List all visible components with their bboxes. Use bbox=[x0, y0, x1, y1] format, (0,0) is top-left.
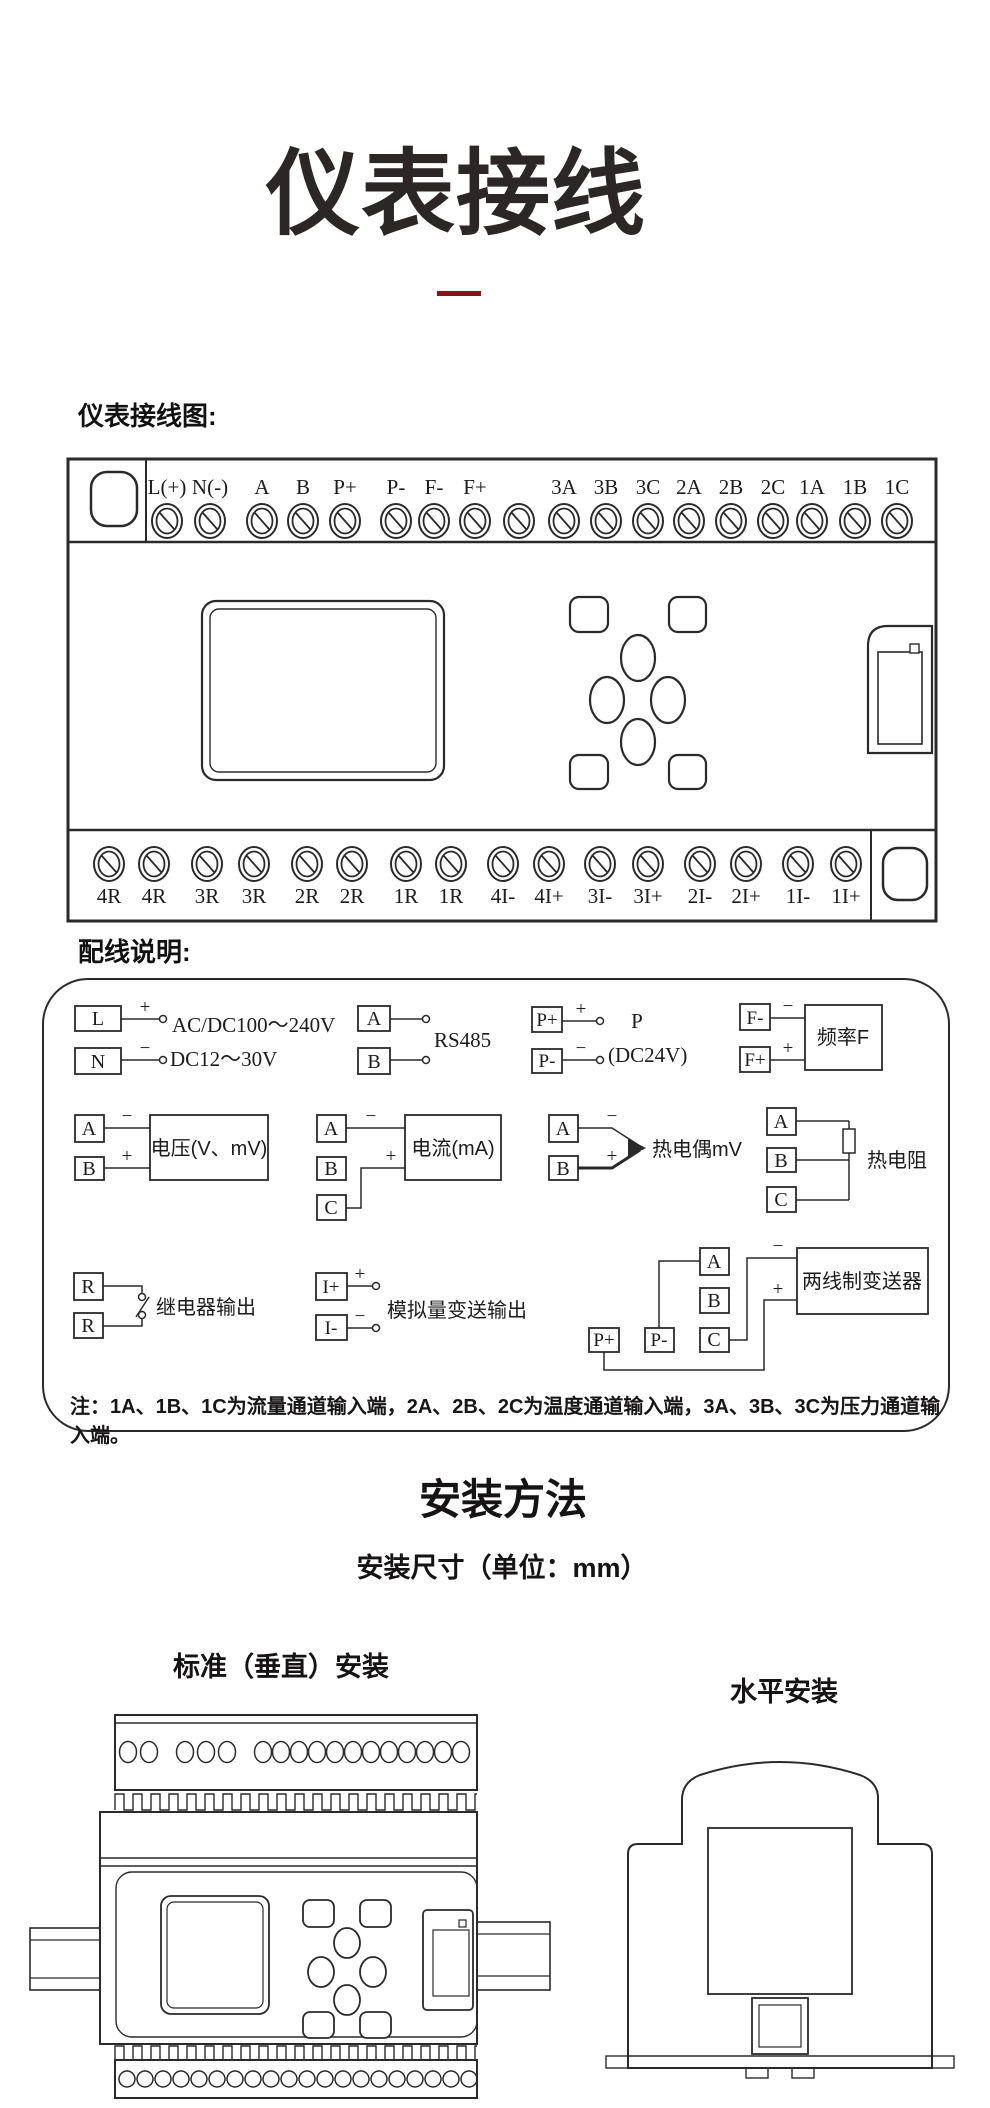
screw-terminal bbox=[419, 504, 449, 538]
svg-text:−: − bbox=[773, 1236, 784, 1257]
terminal-label: 2C bbox=[761, 475, 786, 499]
screw-terminal bbox=[247, 504, 277, 538]
svg-text:A: A bbox=[367, 1008, 382, 1030]
screw-terminal bbox=[731, 847, 761, 881]
display-window bbox=[202, 601, 444, 780]
legend-current: A B C 电流(mA) − + bbox=[317, 1106, 501, 1220]
screw-terminal bbox=[330, 504, 360, 538]
svg-text:−: − bbox=[122, 1106, 133, 1127]
legend-rtd: A B C 热电阻 bbox=[767, 1108, 927, 1212]
terminal-label: 2A bbox=[676, 475, 703, 499]
svg-text:−: − bbox=[366, 1106, 377, 1127]
screw-terminal bbox=[239, 847, 269, 881]
terminal-label: 1A bbox=[799, 475, 826, 499]
terminal-label: 2I- bbox=[688, 884, 713, 908]
mini-connector bbox=[423, 1910, 473, 2010]
legend-note: 注：1A、1B、1C为流量通道输入端，2A、2B、2C为温度通道输入端，3A、3… bbox=[70, 1390, 950, 1448]
legend-frequency: F- F+ 频率F − + bbox=[740, 996, 882, 1072]
key-left bbox=[590, 677, 624, 723]
svg-text:−: − bbox=[355, 1306, 366, 1327]
screw-terminal bbox=[633, 847, 663, 881]
svg-text:继电器输出: 继电器输出 bbox=[156, 1296, 256, 1319]
screw-terminal bbox=[716, 504, 746, 538]
terminal-label: L(+) bbox=[148, 475, 187, 499]
mount-hole-bottom-right bbox=[883, 848, 927, 900]
svg-text:+: + bbox=[355, 1264, 366, 1285]
screw-terminal bbox=[797, 504, 827, 538]
svg-text:C: C bbox=[707, 1329, 720, 1351]
terminal-label: 3A bbox=[551, 475, 578, 499]
svg-text:−: − bbox=[576, 1038, 587, 1059]
screw-terminal bbox=[840, 504, 870, 538]
terminal-label: P- bbox=[387, 475, 406, 499]
screw-terminal bbox=[192, 847, 222, 881]
terminal-label: 4I+ bbox=[534, 884, 563, 908]
screw-terminal bbox=[674, 504, 704, 538]
screw-terminal bbox=[488, 847, 518, 881]
svg-text:L: L bbox=[92, 1008, 104, 1030]
terminal-label: 2I+ bbox=[731, 884, 760, 908]
terminal-label: 3I+ bbox=[633, 884, 662, 908]
svg-text:+: + bbox=[386, 1146, 397, 1167]
screw-terminal bbox=[685, 847, 715, 881]
mini-keypad bbox=[303, 1900, 391, 2038]
svg-text:热电偶mV: 热电偶mV bbox=[652, 1138, 743, 1161]
legend-dc24: P+ P- + − P (DC24V) bbox=[532, 999, 687, 1073]
svg-text:A: A bbox=[82, 1118, 97, 1140]
svg-text:A: A bbox=[707, 1251, 722, 1273]
svg-text:R: R bbox=[81, 1276, 95, 1298]
terminal-label: 1R bbox=[394, 884, 419, 908]
svg-text:C: C bbox=[774, 1189, 787, 1211]
terminal-label: 3R bbox=[195, 884, 220, 908]
svg-text:热电阻: 热电阻 bbox=[867, 1149, 927, 1172]
terminal-label: 4I- bbox=[491, 884, 516, 908]
svg-text:+: + bbox=[773, 1279, 784, 1300]
svg-text:+: + bbox=[783, 1038, 794, 1059]
svg-text:F-: F- bbox=[747, 1008, 764, 1029]
key-bottom-left bbox=[570, 755, 608, 789]
terminal-label: 1B bbox=[843, 475, 868, 499]
screw-terminal bbox=[139, 847, 169, 881]
din-rail-right bbox=[477, 1922, 550, 1990]
svg-text:频率F: 频率F bbox=[817, 1026, 869, 1049]
terminal-label: F- bbox=[425, 475, 444, 499]
screw-terminal bbox=[337, 847, 367, 881]
key-right bbox=[651, 677, 685, 723]
screw-terminal bbox=[436, 847, 466, 881]
terminal-label: 4R bbox=[97, 884, 122, 908]
screw-terminal bbox=[195, 504, 225, 538]
screw-terminal bbox=[591, 504, 621, 538]
legend-analog-output: I+ I- + − 模拟量变送输出 bbox=[316, 1264, 527, 1340]
manual-page: 仪表接线 仪表接线图: L(+)N(-)ABP+P-F-F+3A3B3C2A2B… bbox=[0, 0, 990, 2108]
install-title: 安装方法 bbox=[0, 1466, 990, 1527]
screw-terminal bbox=[292, 847, 322, 881]
terminal-label: A bbox=[254, 475, 270, 499]
svg-text:DC12～30V: DC12～30V bbox=[170, 1047, 277, 1071]
svg-text:C: C bbox=[324, 1197, 337, 1219]
svg-text:+: + bbox=[576, 999, 587, 1020]
screw-terminal bbox=[549, 504, 579, 538]
screw-terminal bbox=[504, 504, 534, 538]
screw-terminal bbox=[460, 504, 490, 538]
terminal-label: 1R bbox=[439, 884, 464, 908]
key-top-left bbox=[570, 597, 608, 632]
legend-relay: R R 继电器输出 bbox=[74, 1273, 256, 1338]
svg-text:P: P bbox=[631, 1009, 643, 1033]
vertical-install-label: 标准（垂直）安装 bbox=[0, 1645, 562, 1684]
key-top-right bbox=[669, 597, 706, 632]
terminal-label: 3C bbox=[636, 475, 661, 499]
terminal-label: 2R bbox=[340, 884, 365, 908]
svg-text:P+: P+ bbox=[536, 1010, 557, 1031]
screw-terminal bbox=[783, 847, 813, 881]
svg-text:F+: F+ bbox=[744, 1050, 765, 1071]
screw-terminal bbox=[633, 504, 663, 538]
screw-terminal bbox=[288, 504, 318, 538]
svg-text:A: A bbox=[556, 1118, 571, 1140]
screw-terminal bbox=[882, 504, 912, 538]
mount-hole-top-left bbox=[91, 472, 137, 526]
screw-terminal bbox=[758, 504, 788, 538]
screw-terminal bbox=[585, 847, 615, 881]
screw-terminal bbox=[381, 504, 411, 538]
svg-text:B: B bbox=[556, 1158, 569, 1180]
terminal-label: 2R bbox=[295, 884, 320, 908]
svg-text:I-: I- bbox=[325, 1318, 338, 1339]
svg-text:B: B bbox=[82, 1158, 95, 1180]
screw-terminal bbox=[94, 847, 124, 881]
horizontal-install-label: 水平安装 bbox=[609, 1670, 959, 1709]
terminal-label: 4R bbox=[142, 884, 167, 908]
svg-text:B: B bbox=[774, 1150, 787, 1172]
svg-text:P+: P+ bbox=[593, 1330, 614, 1351]
svg-text:B: B bbox=[324, 1158, 337, 1180]
terminal-label: 3I- bbox=[588, 884, 613, 908]
svg-text:A: A bbox=[774, 1111, 789, 1133]
svg-text:模拟量变送输出: 模拟量变送输出 bbox=[387, 1299, 527, 1322]
mini-display bbox=[161, 1896, 269, 2014]
svg-text:A: A bbox=[324, 1118, 339, 1140]
svg-text:(DC24V): (DC24V) bbox=[608, 1043, 687, 1067]
terminal-label: 3B bbox=[594, 475, 619, 499]
svg-text:两线制变送器: 两线制变送器 bbox=[802, 1270, 922, 1293]
din-clip bbox=[752, 1998, 808, 2054]
page-title: 仪表接线 bbox=[0, 118, 912, 254]
svg-text:+: + bbox=[607, 1146, 618, 1167]
instrument-wiring-diagram: L(+)N(-)ABP+P-F-F+3A3B3C2A2B2C1A1B1C bbox=[65, 456, 939, 924]
terminal-label: F+ bbox=[463, 475, 487, 499]
svg-text:I+: I+ bbox=[322, 1277, 339, 1298]
key-up bbox=[621, 635, 655, 681]
terminal-label: N(-) bbox=[192, 475, 228, 499]
svg-text:电流(mA): 电流(mA) bbox=[411, 1137, 494, 1160]
terminal-label: P+ bbox=[333, 475, 357, 499]
screw-terminal bbox=[534, 847, 564, 881]
terminal-label: B bbox=[296, 475, 310, 499]
vertical-install-drawing bbox=[15, 1700, 565, 2100]
screw-terminal bbox=[391, 847, 421, 881]
terminal-label: 2B bbox=[719, 475, 744, 499]
svg-text:+: + bbox=[140, 997, 151, 1018]
svg-text:N: N bbox=[91, 1051, 105, 1073]
svg-text:+: + bbox=[122, 1146, 133, 1167]
svg-text:P-: P- bbox=[539, 1051, 556, 1072]
terminal-label: 1C bbox=[885, 475, 910, 499]
red-divider bbox=[437, 291, 481, 296]
svg-text:R: R bbox=[81, 1315, 95, 1337]
legend-power: L N + − AC/DC100～240V DC12～30V bbox=[75, 997, 335, 1074]
horizontal-install-drawing bbox=[600, 1738, 960, 2108]
svg-text:电压(V、mV): 电压(V、mV) bbox=[151, 1137, 268, 1160]
svg-text:−: − bbox=[607, 1106, 618, 1127]
terminal-label: 1I+ bbox=[831, 884, 860, 908]
wiring-section-label: 仪表接线图: bbox=[78, 396, 217, 433]
svg-text:RS485: RS485 bbox=[434, 1028, 491, 1052]
din-rail-left bbox=[30, 1928, 100, 1990]
terminal-label: 1I- bbox=[786, 884, 811, 908]
screw-terminal bbox=[831, 847, 861, 881]
legend-transmitter: A B C P+ P- 两线制变送器 − + bbox=[589, 1236, 928, 1370]
key-down bbox=[621, 719, 655, 765]
install-subtitle: 安装尺寸（单位：mm） bbox=[0, 1546, 990, 1585]
terminal-label: 3R bbox=[242, 884, 267, 908]
svg-text:−: − bbox=[140, 1038, 151, 1059]
svg-text:P-: P- bbox=[651, 1330, 668, 1351]
legend-voltage: A B 电压(V、mV) − + bbox=[75, 1106, 268, 1180]
svg-text:B: B bbox=[367, 1051, 380, 1073]
legend-section-label: 配线说明: bbox=[78, 932, 191, 969]
wiring-legend-box: L N + − AC/DC100～240V DC12～30V A B RS485 bbox=[40, 976, 952, 1434]
svg-text:AC/DC100～240V: AC/DC100～240V bbox=[172, 1013, 335, 1037]
svg-text:B: B bbox=[707, 1290, 720, 1312]
key-bottom-right bbox=[669, 755, 706, 789]
svg-text:−: − bbox=[783, 996, 794, 1017]
screw-terminal bbox=[152, 504, 182, 538]
legend-rs485: A B RS485 bbox=[358, 1006, 491, 1074]
legend-thermocouple: A B − + 热电偶mV bbox=[549, 1106, 743, 1180]
